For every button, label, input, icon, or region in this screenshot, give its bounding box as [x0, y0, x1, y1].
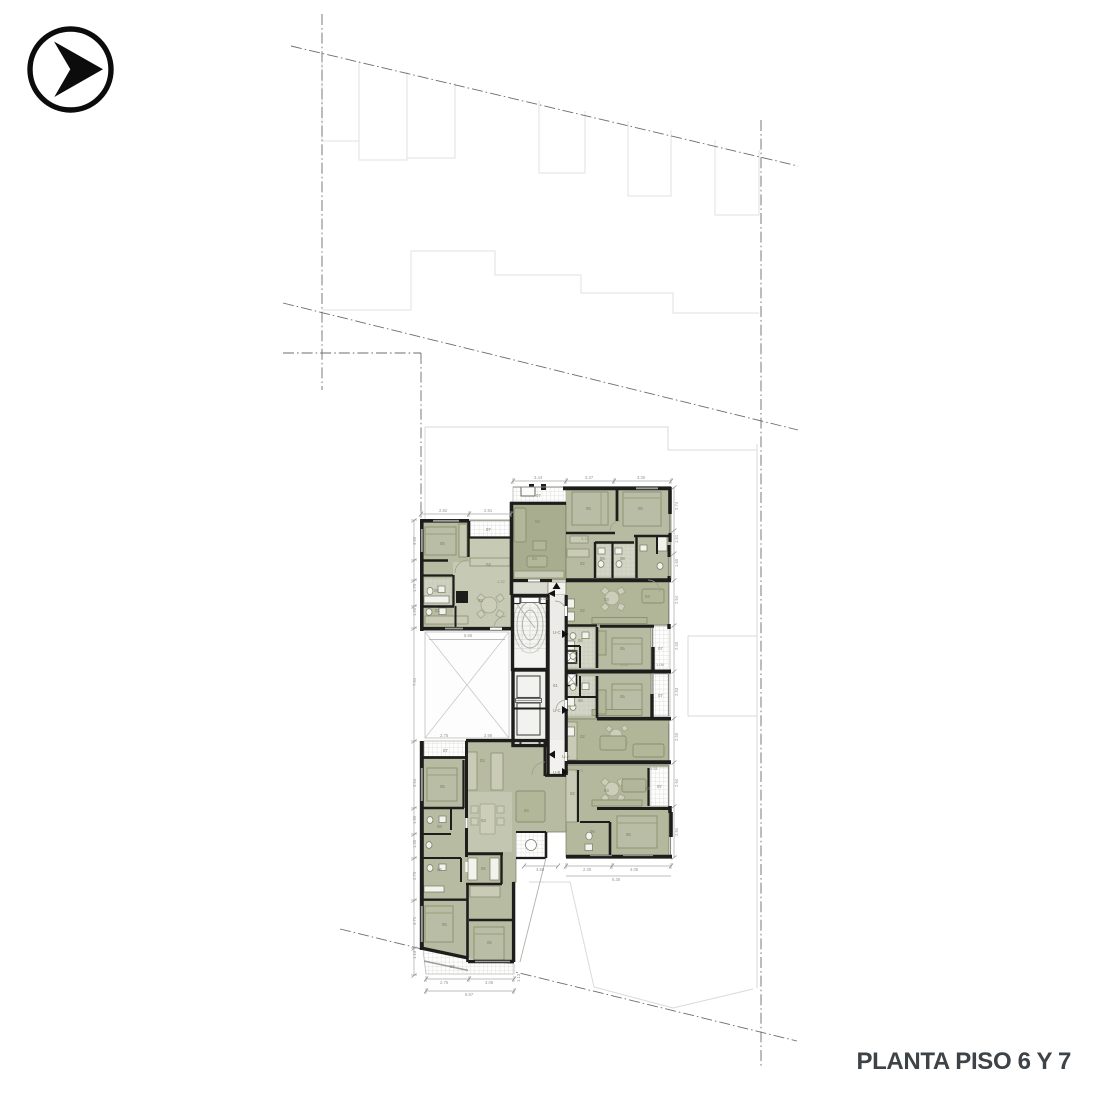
- svg-text:06: 06: [437, 867, 442, 872]
- svg-text:03: 03: [604, 788, 609, 793]
- svg-text:1.13: 1.13: [412, 950, 417, 959]
- svg-text:3.55: 3.55: [412, 536, 417, 545]
- svg-text:06: 06: [434, 588, 439, 593]
- svg-text:1.60: 1.60: [674, 558, 679, 567]
- svg-text:U-C: U-C: [553, 708, 561, 713]
- svg-text:05: 05: [626, 832, 631, 837]
- svg-text:1.90: 1.90: [412, 815, 417, 824]
- svg-text:06: 06: [437, 824, 442, 829]
- svg-text:05: 05: [638, 506, 643, 511]
- svg-text:1.13: 1.13: [516, 973, 521, 982]
- svg-text:06: 06: [481, 866, 486, 871]
- svg-text:05: 05: [440, 541, 445, 546]
- svg-text:3.13: 3.13: [581, 536, 590, 541]
- svg-text:06: 06: [590, 829, 595, 834]
- svg-text:1.08: 1.08: [656, 662, 665, 667]
- svg-text:7.51: 7.51: [412, 677, 417, 686]
- svg-text:02: 02: [580, 561, 585, 566]
- svg-text:07: 07: [450, 964, 455, 969]
- svg-text:U-C: U-C: [553, 630, 561, 635]
- svg-text:2.91: 2.91: [484, 508, 493, 513]
- svg-text:1.50: 1.50: [412, 607, 417, 616]
- svg-text:5.65: 5.65: [464, 633, 473, 638]
- svg-text:2.54: 2.54: [674, 595, 679, 604]
- svg-text:1.51: 1.51: [674, 534, 679, 543]
- svg-text:04: 04: [486, 562, 491, 567]
- svg-text:4.05: 4.05: [630, 867, 639, 872]
- svg-text:3.37: 3.37: [585, 475, 594, 480]
- svg-text:3.30: 3.30: [637, 475, 646, 480]
- svg-text:07: 07: [657, 784, 662, 789]
- svg-text:2.74: 2.74: [674, 501, 679, 510]
- svg-text:02: 02: [480, 758, 485, 763]
- svg-text:07: 07: [658, 693, 663, 698]
- svg-text:1.65: 1.65: [540, 596, 549, 601]
- svg-text:07: 07: [443, 748, 448, 753]
- svg-text:1.70: 1.70: [412, 583, 417, 592]
- svg-text:02: 02: [580, 734, 585, 739]
- svg-text:3.50: 3.50: [536, 867, 545, 872]
- svg-text:05: 05: [442, 922, 447, 927]
- svg-text:3.04: 3.04: [620, 662, 629, 667]
- svg-text:5.87: 5.87: [465, 992, 474, 997]
- svg-text:03: 03: [478, 598, 483, 603]
- svg-text:05: 05: [440, 784, 445, 789]
- svg-text:3.06: 3.06: [485, 980, 494, 985]
- svg-text:3.44: 3.44: [534, 475, 543, 480]
- svg-text:1.22: 1.22: [497, 579, 506, 584]
- svg-text:03: 03: [532, 556, 537, 561]
- svg-text:2.30: 2.30: [583, 867, 592, 872]
- svg-text:02: 02: [580, 608, 585, 613]
- svg-text:3.64: 3.64: [412, 778, 417, 787]
- svg-text:2.75: 2.75: [440, 733, 449, 738]
- svg-text:3.73: 3.73: [575, 768, 584, 773]
- svg-text:05: 05: [620, 646, 625, 651]
- svg-text:05: 05: [620, 694, 625, 699]
- svg-text:U-B: U-B: [553, 770, 561, 775]
- svg-text:U-A: U-A: [562, 754, 570, 759]
- svg-text:04: 04: [524, 808, 529, 813]
- svg-text:03: 03: [604, 597, 609, 602]
- svg-text:08: 08: [620, 556, 625, 561]
- svg-text:2.94: 2.94: [674, 778, 679, 787]
- svg-text:04: 04: [645, 594, 650, 599]
- svg-text:03: 03: [481, 818, 486, 823]
- svg-text:04: 04: [645, 786, 650, 791]
- svg-text:04: 04: [535, 519, 540, 524]
- svg-text:02: 02: [570, 791, 575, 796]
- svg-text:3.71: 3.71: [412, 916, 417, 925]
- svg-text:2.91: 2.91: [674, 827, 679, 836]
- svg-text:2.50: 2.50: [674, 732, 679, 741]
- svg-text:06: 06: [578, 638, 583, 643]
- svg-text:01: 01: [553, 683, 558, 688]
- svg-text:2.50: 2.50: [674, 641, 679, 650]
- svg-text:2.75: 2.75: [440, 980, 449, 985]
- svg-text:2.98: 2.98: [484, 733, 493, 738]
- svg-text:07: 07: [658, 646, 663, 651]
- svg-text:02: 02: [435, 608, 440, 613]
- svg-text:1.30: 1.30: [412, 839, 417, 848]
- svg-text:2.75: 2.75: [412, 871, 417, 880]
- svg-text:1.21: 1.21: [650, 766, 659, 771]
- svg-text:07: 07: [536, 493, 541, 498]
- svg-text:2.82: 2.82: [439, 508, 448, 513]
- svg-text:06: 06: [578, 698, 583, 703]
- svg-text:07: 07: [486, 527, 491, 532]
- svg-text:2.93: 2.93: [674, 687, 679, 696]
- svg-text:05: 05: [487, 940, 492, 945]
- svg-text:05: 05: [586, 506, 591, 511]
- svg-text:6.35: 6.35: [612, 877, 621, 882]
- svg-text:06: 06: [600, 556, 605, 561]
